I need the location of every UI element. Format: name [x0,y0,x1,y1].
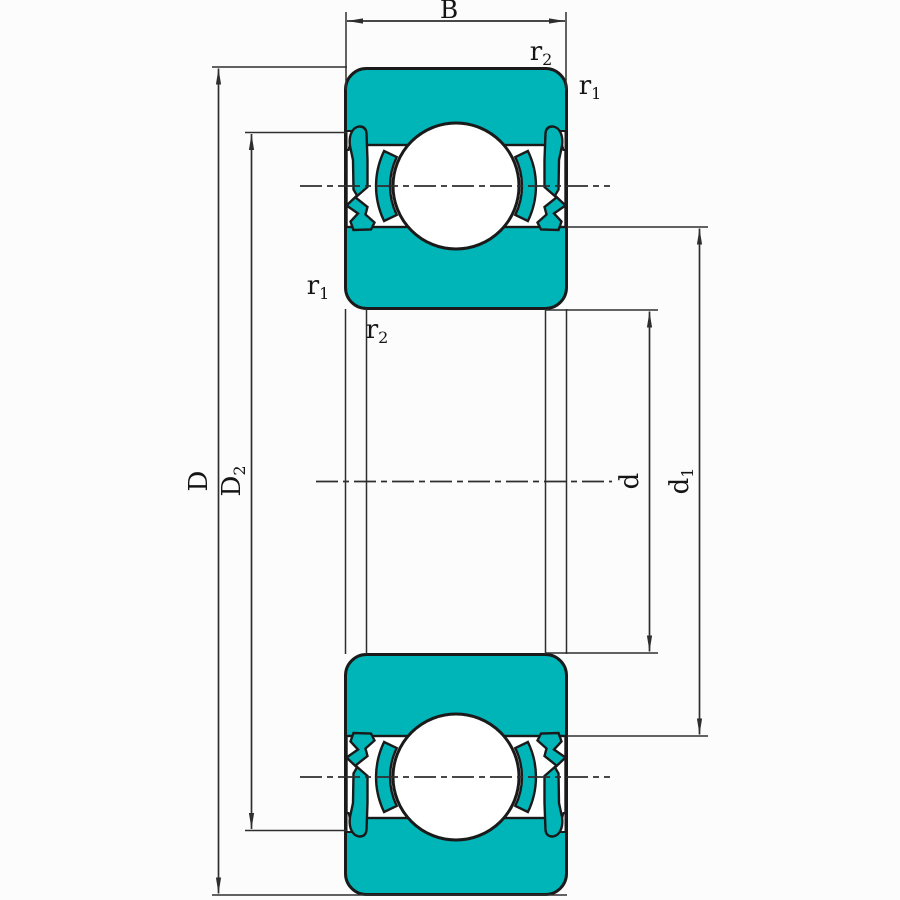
diagram-canvas: B D D2 d d1 r2 r1 r1 r2 [0,0,900,900]
label-B: B [440,0,458,24]
label-d: d [615,473,645,490]
bearing-cross-section-diagram: B D D2 d d1 r2 r1 r1 r2 [0,0,900,900]
label-D: D [184,471,214,492]
lower-half-section [346,655,567,895]
upper-half-section [346,69,567,309]
